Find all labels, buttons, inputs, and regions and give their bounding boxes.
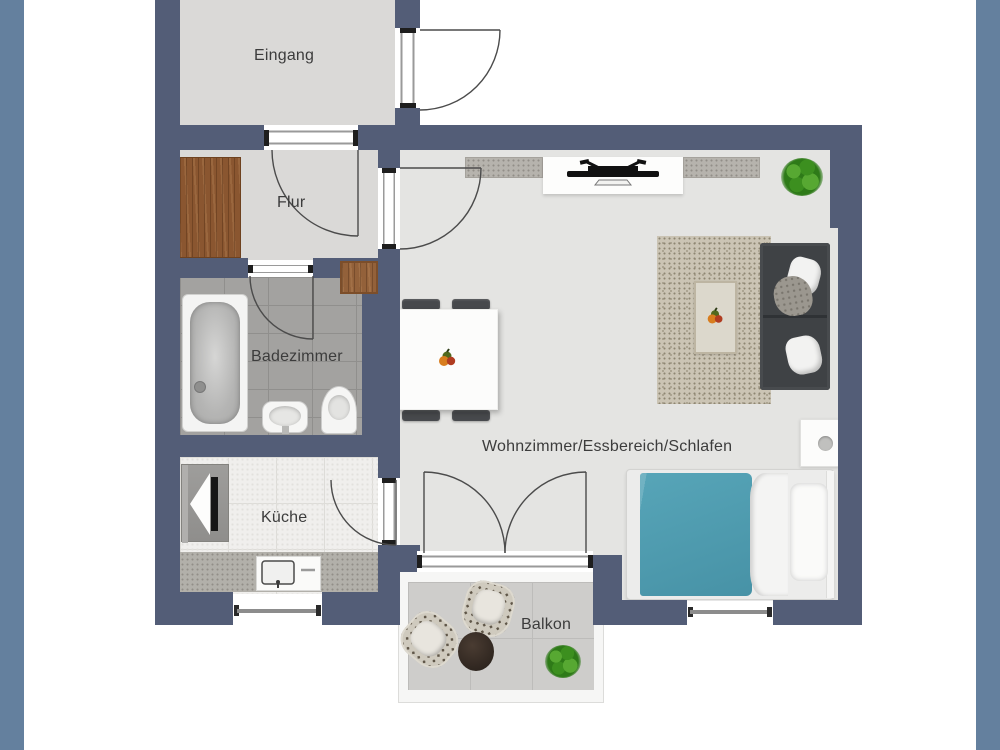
- room-label-eingang: Eingang: [254, 47, 314, 65]
- door-kueche: [378, 478, 400, 545]
- wall-top-living: [358, 125, 862, 150]
- wall-bad-bottom: [180, 435, 400, 457]
- coffee-table: [694, 281, 737, 354]
- room-label-wohnbereich: Wohnzimmer/Essbereich/Schlafen: [482, 438, 732, 456]
- floor-plan: Eingang Flur Badezimmer Küche Wohnzimmer…: [0, 0, 1000, 750]
- door-flur-wohnzimmer: [378, 168, 400, 249]
- balcony-plant: [545, 645, 581, 678]
- window-glass: [690, 610, 769, 614]
- entrance-door: [395, 28, 420, 108]
- sink-basin: [269, 406, 301, 426]
- window-glass: [237, 609, 319, 613]
- room-label-kueche: Küche: [261, 509, 307, 527]
- chair-seat: [405, 616, 452, 662]
- hall-cabinet: [340, 261, 378, 294]
- door-eingang-flur: [264, 125, 358, 150]
- balcony-table: [458, 632, 494, 671]
- toilet-bowl: [328, 395, 350, 420]
- wall-kueche-right-upper: [378, 457, 400, 478]
- kueche-window: [233, 598, 322, 623]
- wall-bed-bottom-right: [773, 600, 862, 625]
- wall-balcony-right: [593, 555, 622, 625]
- bathtub-basin: [190, 302, 240, 424]
- bed-blanket: [640, 473, 752, 596]
- bed-duvet-fold: [750, 473, 788, 596]
- wall-kueche-bottom-right: [322, 592, 400, 625]
- wall-flur-right-upper: [378, 150, 400, 168]
- fruit-bowl-icon: [435, 348, 459, 372]
- wall-right-main: [838, 228, 862, 625]
- plant-corner: [781, 158, 823, 196]
- nightstand-lamp: [818, 436, 833, 451]
- dining-table: [394, 309, 498, 410]
- sideboard-right: [683, 157, 760, 178]
- wall-bed-bottom-left: [622, 600, 687, 625]
- room-label-flur: Flur: [277, 194, 305, 212]
- room-label-badezimmer: Badezimmer: [251, 348, 343, 366]
- dining-chair: [402, 410, 440, 421]
- wardrobe: [179, 157, 241, 258]
- bed-pillow: [790, 483, 828, 581]
- wall-eingang-right-upper: [395, 0, 420, 30]
- nightstand: [800, 419, 839, 467]
- wall-left: [155, 0, 180, 625]
- bathtub: [182, 294, 248, 432]
- refrigerator: [181, 464, 229, 542]
- kitchen-sink-unit: [256, 556, 321, 591]
- right-frame-bar: [976, 0, 1000, 750]
- tv-board: [543, 157, 683, 194]
- dining-chair: [452, 410, 490, 421]
- sideboard-left: [465, 157, 543, 178]
- wall-bad-top-left: [180, 258, 248, 278]
- toilet: [321, 386, 357, 434]
- wall-eingang-bottom-left: [155, 125, 268, 150]
- balcony-double-door: [417, 551, 593, 572]
- schlafen-window: [687, 601, 773, 623]
- room-label-balkon: Balkon: [521, 616, 571, 634]
- bathroom-sink: [262, 401, 308, 433]
- chair-seat: [469, 587, 509, 628]
- bathtub-drain: [194, 381, 206, 393]
- door-badezimmer: [248, 262, 313, 276]
- left-frame-bar: [0, 0, 24, 750]
- wall-right-upper: [830, 125, 862, 228]
- tv-icon: [543, 157, 683, 194]
- refrigerator-icon: [182, 465, 230, 543]
- wall-kueche-bottom-left: [155, 592, 233, 625]
- sink-tap: [282, 426, 289, 434]
- kitchen-sink-icon: [257, 557, 320, 590]
- fruit-bowl-icon: [704, 307, 726, 329]
